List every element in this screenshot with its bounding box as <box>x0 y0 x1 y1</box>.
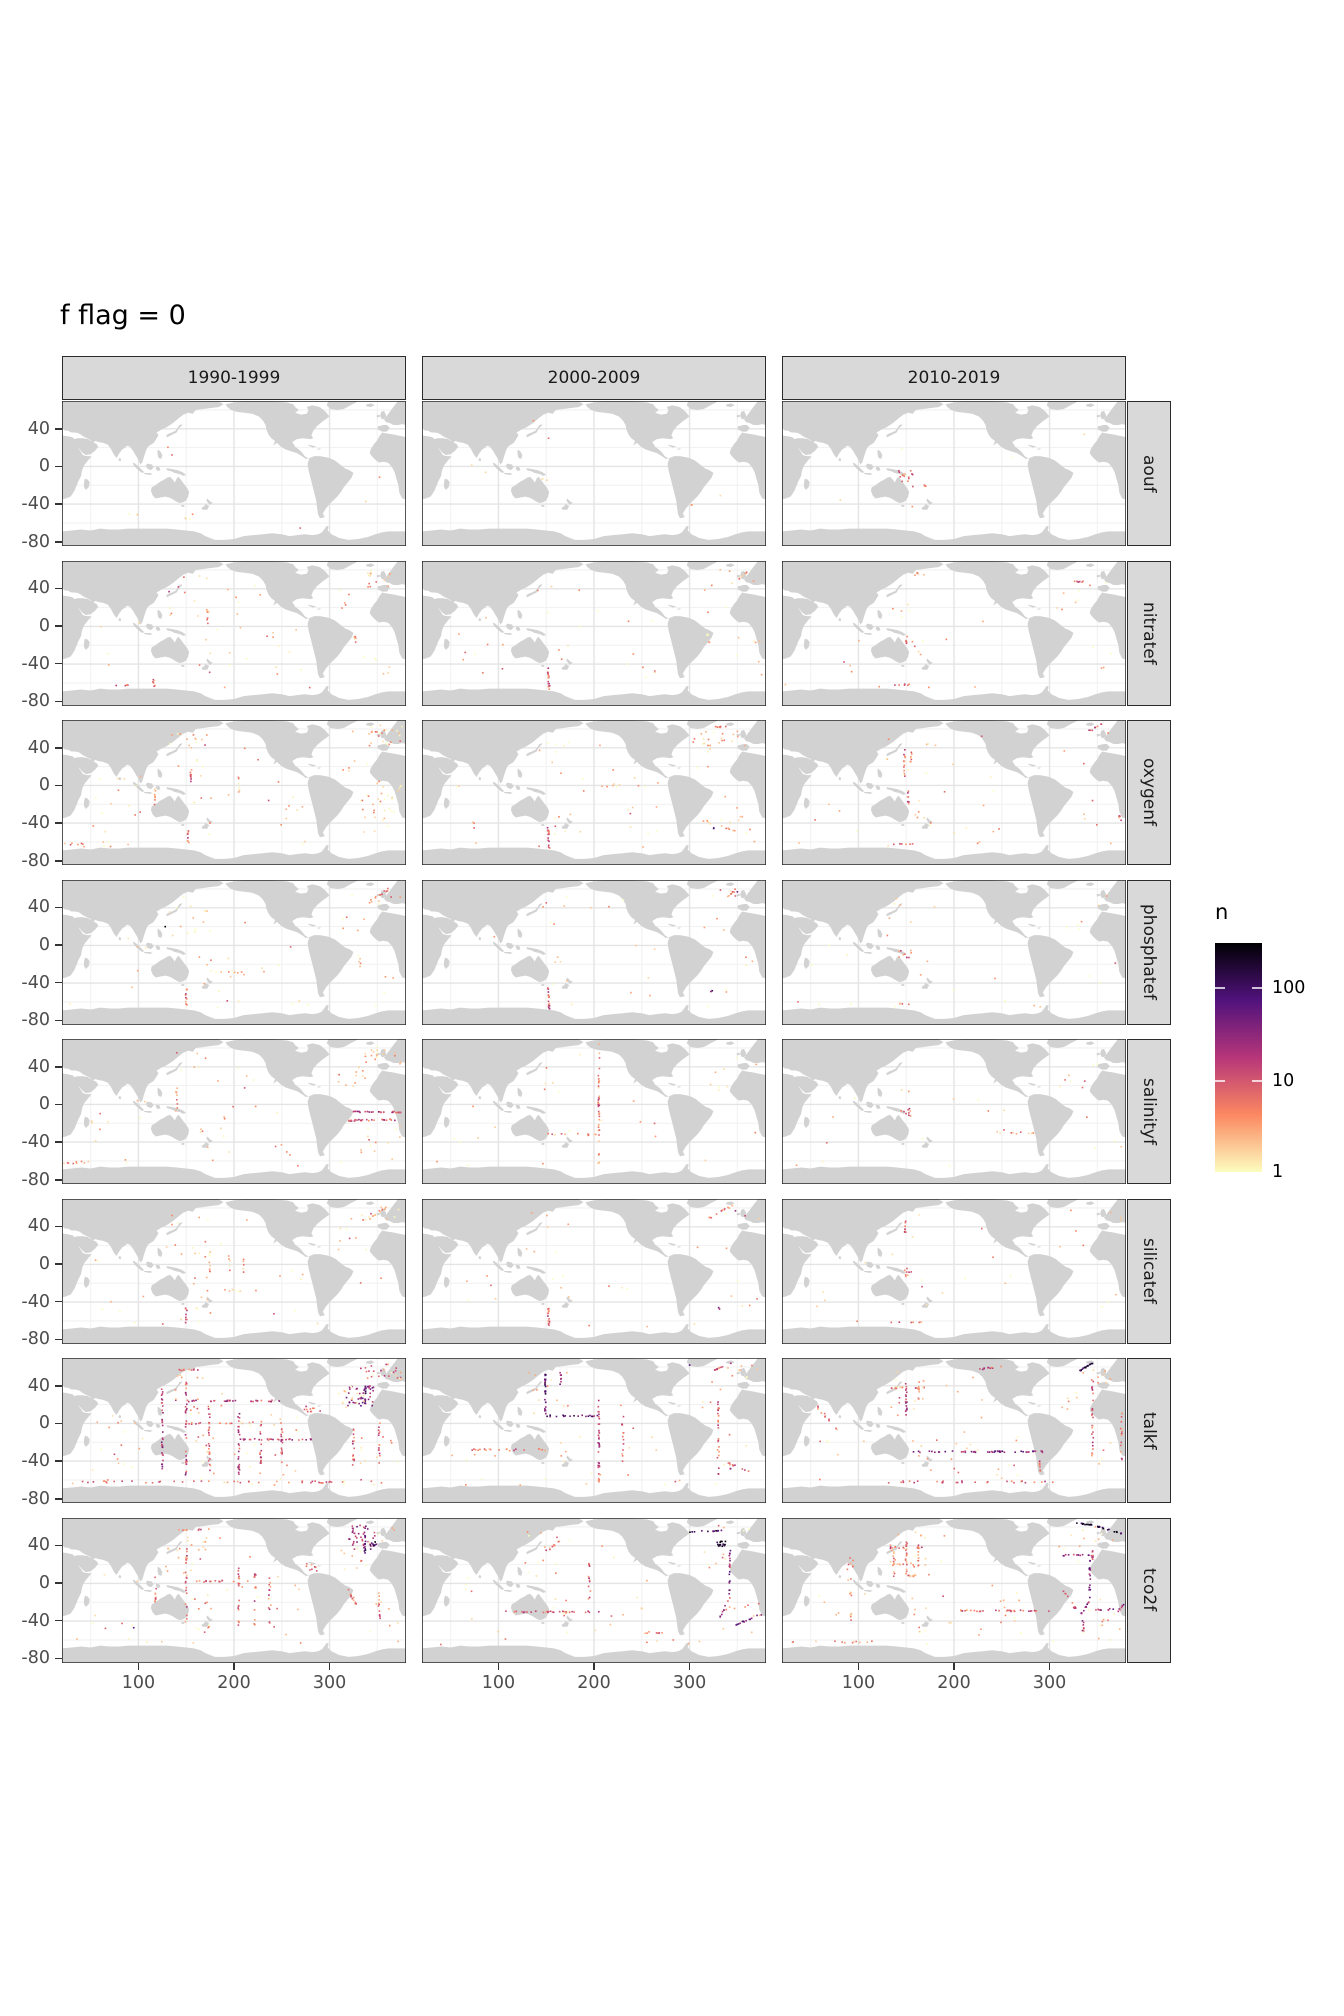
y-axis-tick-label: -40 <box>8 1611 50 1631</box>
map-panel <box>782 1358 1126 1503</box>
y-axis-tick-label: -80 <box>8 532 50 552</box>
axis-tick <box>689 1663 691 1670</box>
y-axis-tick-label: 0 <box>8 616 50 636</box>
map-panel <box>422 1358 766 1503</box>
map-panel <box>62 1518 406 1663</box>
map-panel <box>422 1199 766 1344</box>
map-panel <box>782 401 1126 546</box>
plot-title: f flag = 0 <box>60 300 186 331</box>
y-axis-tick-label: 0 <box>8 1573 50 1593</box>
axis-tick <box>55 1658 62 1660</box>
map-panel <box>782 561 1126 706</box>
axis-tick <box>55 907 62 909</box>
map-panel <box>422 720 766 865</box>
y-axis-tick-label: 0 <box>8 1413 50 1433</box>
y-axis-tick-label: -40 <box>8 654 50 674</box>
axis-tick <box>55 1620 62 1622</box>
y-axis-tick-label: 40 <box>8 1057 50 1077</box>
axis-tick <box>55 1498 62 1500</box>
axis-tick <box>55 1385 62 1387</box>
y-axis-tick-label: 40 <box>8 1376 50 1396</box>
column-strip: 2000-2009 <box>422 356 766 400</box>
column-strip-label: 2000-2009 <box>548 368 641 388</box>
axis-tick <box>1049 1663 1051 1670</box>
x-axis-tick-label: 200 <box>204 1673 264 1693</box>
y-axis-tick-label: -80 <box>8 1010 50 1030</box>
map-panel <box>62 1199 406 1344</box>
axis-tick <box>138 1663 140 1670</box>
axis-tick <box>55 588 62 590</box>
row-strip-label: silicatef <box>1139 1238 1159 1304</box>
row-strip: nitratef <box>1127 561 1171 706</box>
row-strip-label: nitratef <box>1139 602 1159 665</box>
row-strip: aouf <box>1127 401 1171 546</box>
axis-tick <box>55 1423 62 1425</box>
axis-tick <box>329 1663 331 1670</box>
axis-tick <box>55 466 62 468</box>
map-panel <box>782 1039 1126 1184</box>
y-axis-tick-label: -40 <box>8 1292 50 1312</box>
row-strip: phosphatef <box>1127 880 1171 1025</box>
map-panel <box>62 1039 406 1184</box>
y-axis-tick-label: -80 <box>8 1170 50 1190</box>
row-strip: talkf <box>1127 1358 1171 1503</box>
map-panel <box>422 1518 766 1663</box>
legend-colorbar <box>1215 943 1262 1172</box>
legend-tick-label: 1 <box>1272 1161 1283 1183</box>
map-panel <box>422 880 766 1025</box>
legend-tick-mark <box>1215 1080 1225 1082</box>
row-strip-label: aouf <box>1139 455 1159 493</box>
map-panel <box>422 401 766 546</box>
axis-tick <box>55 1263 62 1265</box>
y-axis-tick-label: 0 <box>8 1254 50 1274</box>
axis-tick <box>953 1663 955 1670</box>
column-strip-label: 2010-2019 <box>908 368 1001 388</box>
axis-tick <box>55 625 62 627</box>
row-strip-label: oxygenf <box>1139 758 1159 826</box>
y-axis-tick-label: 40 <box>8 578 50 598</box>
legend-title: n <box>1215 900 1228 924</box>
map-panel <box>62 561 406 706</box>
x-axis-tick-label: 100 <box>108 1673 168 1693</box>
map-panel <box>422 561 766 706</box>
axis-tick <box>55 785 62 787</box>
x-axis-tick-label: 100 <box>468 1673 528 1693</box>
row-strip-label: talkf <box>1139 1412 1159 1450</box>
row-strip-label: phosphatef <box>1139 904 1159 1000</box>
x-axis-tick-label: 300 <box>660 1673 720 1693</box>
axis-tick <box>55 982 62 984</box>
y-axis-tick-label: 40 <box>8 738 50 758</box>
map-panel <box>782 720 1126 865</box>
map-panel <box>62 880 406 1025</box>
legend-tick-label: 100 <box>1272 977 1305 999</box>
axis-tick <box>55 822 62 824</box>
legend-tick-mark <box>1252 1080 1262 1082</box>
axis-tick <box>55 747 62 749</box>
y-axis-tick-label: -80 <box>8 1329 50 1349</box>
axis-tick <box>55 1020 62 1022</box>
y-axis-tick-label: 40 <box>8 1535 50 1555</box>
axis-tick <box>858 1663 860 1670</box>
axis-tick <box>55 1545 62 1547</box>
column-strip: 1990-1999 <box>62 356 406 400</box>
legend-tick-mark <box>1252 987 1262 989</box>
axis-tick <box>55 944 62 946</box>
x-axis-tick-label: 200 <box>564 1673 624 1693</box>
map-panel <box>782 880 1126 1025</box>
axis-tick <box>55 428 62 430</box>
row-strip-label: tco2f <box>1139 1568 1159 1611</box>
y-axis-tick-label: 40 <box>8 419 50 439</box>
axis-tick <box>55 1066 62 1068</box>
x-axis-tick-label: 300 <box>300 1673 360 1693</box>
map-panel <box>782 1518 1126 1663</box>
axis-tick <box>55 541 62 543</box>
x-axis-tick-label: 300 <box>1020 1673 1080 1693</box>
row-strip: oxygenf <box>1127 720 1171 865</box>
axis-tick <box>55 663 62 665</box>
axis-tick <box>55 701 62 703</box>
row-strip: silicatef <box>1127 1199 1171 1344</box>
map-panel <box>62 1358 406 1503</box>
axis-tick <box>55 1226 62 1228</box>
axis-tick <box>55 1104 62 1106</box>
row-strip-label: salinityf <box>1139 1078 1159 1145</box>
axis-tick <box>55 1582 62 1584</box>
axis-tick <box>55 1460 62 1462</box>
y-axis-tick-label: -40 <box>8 973 50 993</box>
y-axis-tick-label: -40 <box>8 1451 50 1471</box>
row-strip: salinityf <box>1127 1039 1171 1184</box>
y-axis-tick-label: -80 <box>8 851 50 871</box>
y-axis-tick-label: 0 <box>8 1094 50 1114</box>
axis-tick <box>55 860 62 862</box>
row-strip: tco2f <box>1127 1518 1171 1663</box>
y-axis-tick-label: -40 <box>8 494 50 514</box>
axis-tick <box>55 1301 62 1303</box>
axis-tick <box>55 1141 62 1143</box>
axis-tick <box>498 1663 500 1670</box>
y-axis-tick-label: 0 <box>8 775 50 795</box>
legend-tick-label: 10 <box>1272 1070 1294 1092</box>
axis-tick <box>233 1663 235 1670</box>
x-axis-tick-label: 100 <box>828 1673 888 1693</box>
y-axis-tick-label: -40 <box>8 813 50 833</box>
y-axis-tick-label: -80 <box>8 1489 50 1509</box>
map-panel <box>62 720 406 865</box>
y-axis-tick-label: 40 <box>8 897 50 917</box>
column-strip: 2010-2019 <box>782 356 1126 400</box>
x-axis-tick-label: 200 <box>924 1673 984 1693</box>
map-panel <box>422 1039 766 1184</box>
y-axis-tick-label: -80 <box>8 691 50 711</box>
axis-tick <box>55 1339 62 1341</box>
y-axis-tick-label: -80 <box>8 1648 50 1668</box>
column-strip-label: 1990-1999 <box>188 368 281 388</box>
axis-tick <box>593 1663 595 1670</box>
map-panel <box>62 401 406 546</box>
axis-tick <box>55 503 62 505</box>
y-axis-tick-label: 0 <box>8 456 50 476</box>
y-axis-tick-label: 40 <box>8 1216 50 1236</box>
y-axis-tick-label: -40 <box>8 1132 50 1152</box>
y-axis-tick-label: 0 <box>8 935 50 955</box>
legend-tick-mark <box>1215 987 1225 989</box>
axis-tick <box>55 1179 62 1181</box>
map-panel <box>782 1199 1126 1344</box>
figure: f flag = 0 aouf400-40-80nitratef400-40-8… <box>0 0 1344 2016</box>
